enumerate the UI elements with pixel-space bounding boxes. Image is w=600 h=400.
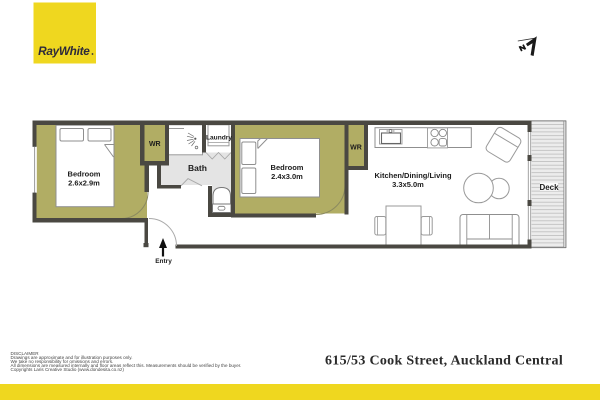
svg-text:Bedroom: Bedroom [68, 170, 101, 179]
svg-text:Bedroom: Bedroom [271, 163, 304, 172]
svg-text:3.3x5.0m: 3.3x5.0m [392, 180, 424, 189]
svg-text:Laundry: Laundry [206, 134, 232, 141]
svg-text:2.6x2.9m: 2.6x2.9m [68, 179, 100, 188]
svg-text:Deck: Deck [539, 183, 559, 192]
svg-text:Entry: Entry [155, 258, 172, 265]
svg-text:Copyrights Laris Creative Stud: Copyrights Laris Creative Studio (www.do… [11, 367, 125, 372]
svg-text:WR: WR [149, 141, 161, 148]
svg-text:RayWhite: RayWhite [38, 44, 90, 58]
svg-text:2.4x3.0m: 2.4x3.0m [271, 172, 303, 181]
svg-text:Bath: Bath [188, 163, 207, 173]
svg-text:WR: WR [350, 145, 362, 152]
svg-text:Kitchen/Dining/Living: Kitchen/Dining/Living [374, 171, 451, 180]
svg-text:615/53 Cook Street, Auckland C: 615/53 Cook Street, Auckland Central [325, 354, 563, 369]
